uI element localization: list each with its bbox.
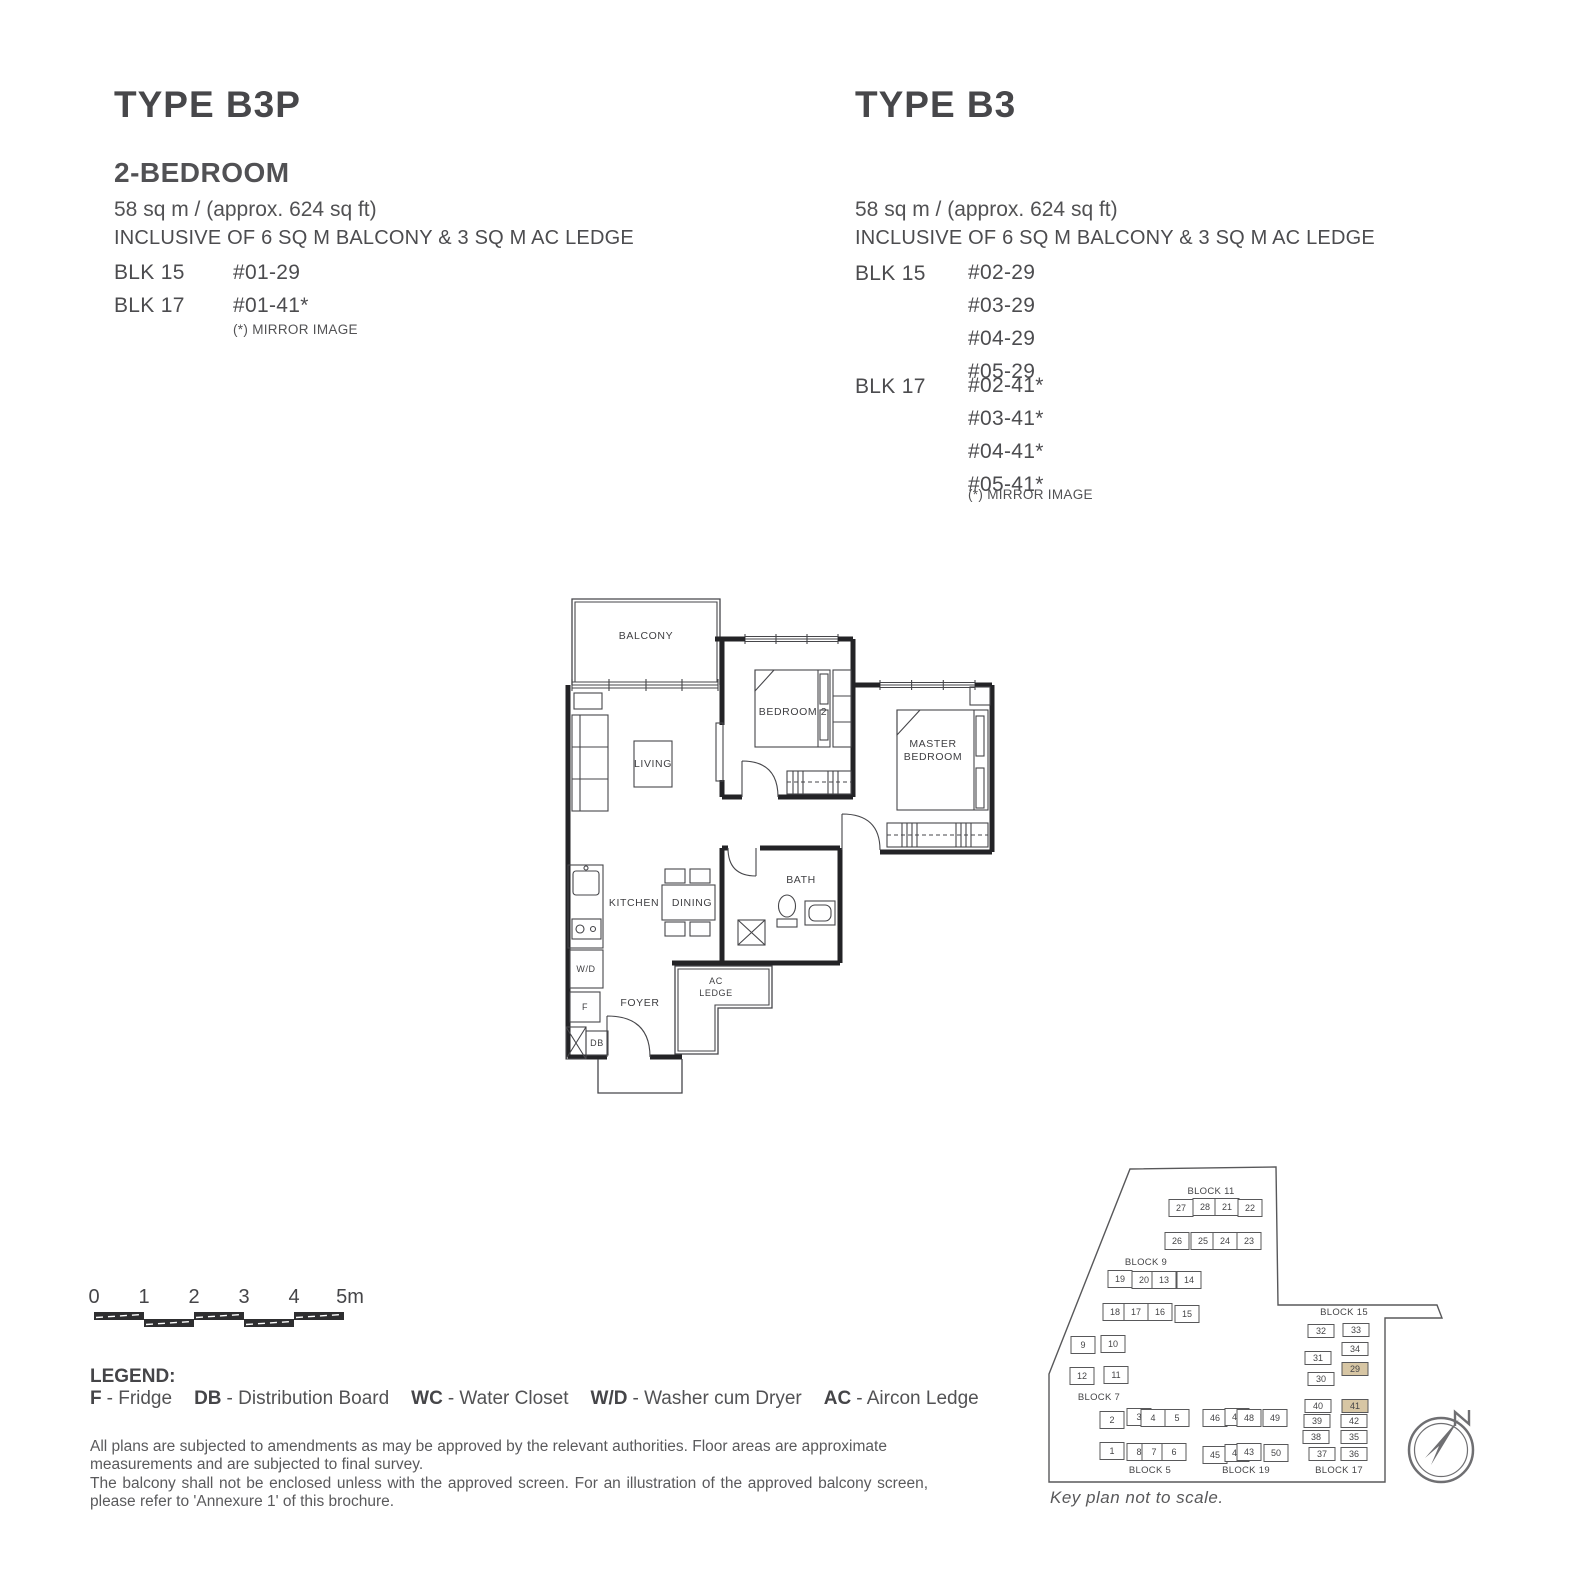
side-table (574, 693, 602, 709)
window-band-bedroom2 (745, 634, 838, 644)
keyplan-unit-number: 19 (1115, 1274, 1125, 1284)
scale-bar-segments (94, 1312, 344, 1327)
keyplan-unit-number: 46 (1210, 1413, 1220, 1423)
legend-abbr: W/D (591, 1388, 628, 1409)
keyplan-block-label: BLOCK 15 (1320, 1307, 1368, 1318)
fridge-label: F (582, 1002, 588, 1012)
unit-number: #03-29 (968, 295, 1035, 316)
legend-item: W/D- Washer cum Dryer (591, 1388, 802, 1410)
keyplan-block-label: BLOCK 11 (1187, 1186, 1234, 1197)
scale-tick-label: 2 (188, 1286, 199, 1308)
keyplan-unit-number: 14 (1184, 1275, 1194, 1285)
kitchen-label: KITCHEN (609, 897, 659, 909)
sofa (572, 715, 608, 811)
block-label: BLK 15 (855, 262, 926, 286)
keyplan-unit-number: 28 (1200, 1202, 1210, 1212)
keyplan-unit-number: 18 (1110, 1307, 1120, 1317)
keyplan-unit-number: 40 (1313, 1401, 1323, 1411)
bed2-closet (787, 771, 851, 794)
db-label: DB (590, 1038, 604, 1048)
unit-number: #02-41* (968, 375, 1044, 396)
keyplan-unit-number: 9 (1080, 1340, 1085, 1350)
kitchen-sink (573, 871, 599, 895)
plan-title-b3: TYPE B3 (855, 84, 1016, 126)
dining-chair (690, 922, 710, 936)
legend-item: F- Fridge (90, 1388, 172, 1410)
legend-abbr: AC (824, 1388, 851, 1409)
keyplan-unit-number: 39 (1312, 1416, 1322, 1426)
keyplan-unit-number: 36 (1349, 1449, 1359, 1459)
keyplan-unit-number: 22 (1245, 1203, 1255, 1213)
living-label: LIVING (634, 758, 672, 770)
master-bedroom-label: MASTER (909, 738, 956, 750)
keyplan-unit-number: 12 (1077, 1371, 1087, 1381)
keyplan-unit-number: 25 (1198, 1236, 1208, 1246)
scale-tick-label: 5m (336, 1286, 364, 1308)
legend-item: DB- Distribution Board (194, 1388, 389, 1410)
ac-ledge-outline-inner (678, 969, 769, 1051)
foyer-label: FOYER (620, 997, 659, 1009)
legend-item: AC- Aircon Ledge (824, 1388, 979, 1410)
toilet (779, 895, 796, 917)
wd-label: W/D (576, 964, 595, 974)
plan-inclusive-b3: INCLUSIVE OF 6 SQ M BALCONY & 3 SQ M AC … (855, 227, 1375, 250)
plan-area-b3p: 58 sq m / (approx. 624 sq ft) (114, 198, 377, 222)
floor-plan-drawing: BALCONY LIVING BEDROOM 2 MASTER BEDROOM … (550, 575, 1010, 1135)
dining-label: DINING (672, 897, 712, 909)
ac-ledge-outline (675, 966, 772, 1054)
legend-item: WC- Water Closet (411, 1388, 568, 1410)
legend-text: - Distribution Board (227, 1388, 390, 1409)
keyplan-unit-number: 31 (1313, 1353, 1323, 1363)
scale-tick-label: 3 (238, 1286, 249, 1308)
dining-chair (665, 869, 685, 883)
balcony-wall (572, 599, 720, 685)
keyplan-unit-number: 45 (1210, 1450, 1220, 1460)
unit-walls (568, 639, 992, 1057)
tv-console (716, 723, 723, 781)
keyplan-unit-number: 29 (1350, 1364, 1360, 1374)
plan-subtitle: 2-BEDROOM (114, 157, 290, 189)
mirror-image-note: (*) MIRROR IMAGE (233, 322, 358, 337)
window-band-living (572, 679, 718, 691)
keyplan-unit-number: 24 (1220, 1236, 1230, 1246)
entry-porch (598, 1059, 682, 1093)
legend-abbr: DB (194, 1388, 221, 1409)
keyplan-unit-number: 17 (1131, 1307, 1141, 1317)
north-compass (1409, 1410, 1473, 1482)
disclaimer: All plans are subjected to amendments as… (90, 1438, 928, 1510)
keyplan-unit-number: 26 (1172, 1236, 1182, 1246)
block-label: BLK 15 (114, 261, 185, 285)
floorplan-brochure-page: TYPE B3P 2-BEDROOM 58 sq m / (approx. 62… (0, 0, 1594, 1595)
keyplan-block-label: BLOCK 9 (1125, 1257, 1167, 1268)
keyplan-unit-number: 4 (1150, 1413, 1155, 1423)
bedside-table (970, 687, 990, 705)
keyplan-unit-number: 2 (1109, 1415, 1114, 1425)
balcony-wall-inner (575, 602, 717, 682)
master-bedroom-label2: BEDROOM (904, 751, 962, 763)
legend-text: - Washer cum Dryer (632, 1388, 801, 1409)
unit-number: #04-41* (968, 441, 1044, 462)
keyplan-unit-number: 21 (1222, 1202, 1232, 1212)
legend-abbr: F (90, 1388, 102, 1409)
keyplan-unit-number: 23 (1244, 1236, 1254, 1246)
keyplan-unit-number: 7 (1151, 1447, 1156, 1457)
keyplan-unit-number: 1 (1109, 1446, 1114, 1456)
keyplan-unit-number: 43 (1244, 1447, 1254, 1457)
unit-number: #03-41* (968, 408, 1044, 429)
balcony-label: BALCONY (619, 630, 673, 642)
keyplan-block-label: BLOCK 7 (1078, 1392, 1120, 1403)
keyplan-unit-number: 48 (1244, 1413, 1254, 1423)
keyplan-unit-number: 34 (1350, 1344, 1360, 1354)
unit-number: #02-29 (968, 262, 1035, 283)
plan-area-b3: 58 sq m / (approx. 624 sq ft) (855, 198, 1118, 222)
keyplan-unit-number: 10 (1108, 1339, 1118, 1349)
unit-number: #04-29 (968, 328, 1035, 349)
keyplan-unit-number: 5 (1174, 1413, 1179, 1423)
compass-inner-circle (1415, 1424, 1468, 1477)
mirror-image-note: (*) MIRROR IMAGE (968, 487, 1093, 502)
key-plan-blocks: BLOCK 112728212226252423BLOCK 9192013141… (1070, 1186, 1369, 1476)
block-label: BLK 17 (114, 294, 185, 318)
keyplan-unit-number: 41 (1350, 1401, 1360, 1411)
scale-tick-label: 0 (88, 1286, 99, 1308)
keyplan-unit-number: 42 (1349, 1416, 1359, 1426)
keyplan-unit-number: 11 (1111, 1370, 1120, 1380)
keyplan-unit-number: 38 (1311, 1432, 1321, 1442)
keyplan-unit-number: 50 (1271, 1448, 1281, 1458)
keyplan-unit-number: 49 (1270, 1413, 1280, 1423)
keyplan-unit-number: 27 (1176, 1203, 1186, 1213)
unit-number: #01-29 (233, 261, 300, 285)
window-band-master (880, 680, 975, 690)
unit-number: #01-41* (233, 294, 309, 318)
keyplan-block-label: BLOCK 19 (1222, 1465, 1270, 1476)
legend-text: - Water Closet (448, 1388, 569, 1409)
plan-inclusive-b3p: INCLUSIVE OF 6 SQ M BALCONY & 3 SQ M AC … (114, 227, 634, 250)
unit-number-list: #02-41* #03-41* #04-41* #05-41* (968, 375, 1044, 501)
ac-ledge-label: AC (709, 976, 723, 986)
keyplan-unit-number: 20 (1139, 1275, 1149, 1285)
legend-text: - Fridge (107, 1388, 172, 1409)
plan-title-b3p: TYPE B3P (114, 84, 301, 126)
keyplan-unit-number: 37 (1317, 1449, 1327, 1459)
ac-ledge-label2: LEDGE (699, 988, 733, 998)
keyplan-block-label: BLOCK 5 (1129, 1465, 1171, 1476)
keyplan-unit-number: 8 (1136, 1447, 1141, 1457)
legend: F- Fridge DB- Distribution Board WC- Wat… (90, 1388, 979, 1410)
legend-text: - Aircon Ledge (856, 1388, 979, 1409)
disclaimer-paragraph: The balcony shall not be enclosed unless… (90, 1475, 928, 1510)
bath-label: BATH (786, 874, 816, 886)
disclaimer-paragraph: All plans are subjected to amendments as… (90, 1438, 928, 1473)
keyplan-unit-number: 13 (1159, 1275, 1169, 1285)
scale-tick-label: 4 (288, 1286, 299, 1308)
scale-tick-label: 1 (138, 1286, 149, 1308)
unit-number-list: #02-29 #03-29 #04-29 #05-29 (968, 262, 1035, 388)
key-plan-note: Key plan not to scale. (1050, 1488, 1224, 1508)
keyplan-unit-number: 16 (1155, 1307, 1165, 1317)
keyplan-unit-number: 35 (1349, 1432, 1359, 1442)
compass-outer-circle (1409, 1418, 1473, 1482)
block-label: BLK 17 (855, 375, 926, 399)
legend-abbr: WC (411, 1388, 443, 1409)
keyplan-block-label: BLOCK 17 (1315, 1465, 1363, 1476)
key-plan: BLOCK 112728212226252423BLOCK 9192013141… (1028, 1152, 1488, 1500)
bed2-wardrobe (833, 670, 851, 747)
bedroom2-label: BEDROOM 2 (759, 706, 827, 718)
keyplan-unit-number: 33 (1351, 1325, 1361, 1335)
keyplan-unit-number: 30 (1316, 1374, 1326, 1384)
keyplan-unit-number: 32 (1316, 1326, 1326, 1336)
dining-chair (690, 869, 710, 883)
dining-chair (665, 922, 685, 936)
legend-heading: LEGEND: (90, 1366, 176, 1388)
keyplan-unit-number: 6 (1171, 1447, 1176, 1457)
keyplan-unit-number: 15 (1182, 1309, 1192, 1319)
scale-bar: 0 1 2 3 4 5m (88, 1285, 378, 1340)
